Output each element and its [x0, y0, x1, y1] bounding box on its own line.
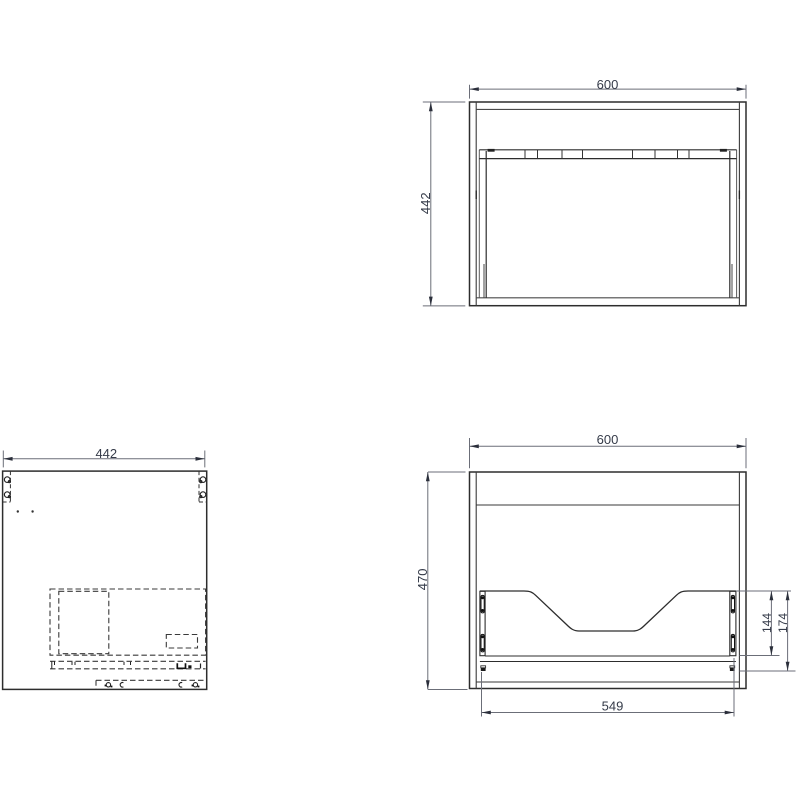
svg-text:600: 600 — [597, 432, 619, 447]
svg-text:442: 442 — [418, 192, 433, 214]
svg-text:442: 442 — [95, 446, 117, 461]
svg-text:144: 144 — [760, 613, 774, 633]
svg-text:174: 174 — [776, 613, 790, 633]
svg-text:600: 600 — [597, 77, 619, 92]
svg-text:470: 470 — [415, 569, 430, 591]
svg-text:549: 549 — [602, 699, 624, 714]
